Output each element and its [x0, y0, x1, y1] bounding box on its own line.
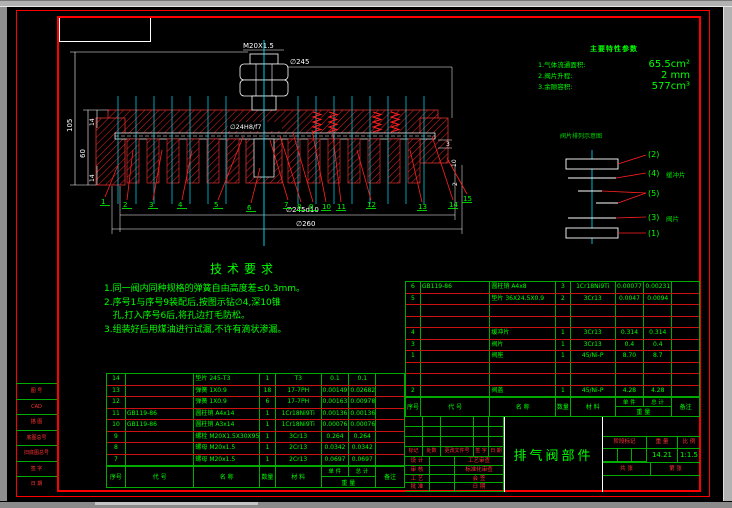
- title-block: 标记 处数 更改文件号 签 字 日 期 设 计工艺审查 审 核标准化审查 工 艺…: [405, 417, 700, 492]
- col-remark: 备注: [376, 466, 404, 487]
- margin-row: 底图总号: [16, 430, 57, 446]
- part-callout: 9: [309, 203, 313, 211]
- col-qty: 数量: [556, 397, 571, 416]
- bom-row: [406, 363, 699, 375]
- dim-bore: ∅24H8/f7: [230, 123, 262, 131]
- col-remark: 备注: [672, 397, 699, 416]
- col-total: 总 计: [349, 466, 375, 476]
- col-code: 代 号: [126, 466, 195, 487]
- margin-row: 图 号: [16, 383, 57, 399]
- plate-callout-note: 阀片: [666, 214, 679, 223]
- bom-row: 6GB119-86圆柱销 A4x831Cr18Ni9Ti0.000770.002…: [406, 282, 699, 294]
- part-callout: 2: [123, 201, 127, 209]
- sign-header-sign: 签 字: [474, 447, 489, 457]
- col-mat: 材 料: [276, 466, 322, 487]
- bom-row: [406, 317, 699, 329]
- bom-row: [406, 374, 699, 386]
- bom-row: 3阀片13Cr130.40.4: [406, 340, 699, 352]
- part-callout: 1: [101, 198, 105, 206]
- binding-margin-table: 图 号CAD描 图底图总号旧底图总号签 字日 期: [16, 383, 57, 492]
- sign-header-mark: 标记: [405, 447, 423, 457]
- sign-header-doc: 更改文件号: [441, 447, 474, 457]
- parameters-block: 主要特性参数 1.气体流通面积:65.5cm²2.阀片升程:2 mm3.余隙容积…: [538, 44, 690, 92]
- col-weight: 重 量: [616, 407, 672, 416]
- part-callout: 6: [247, 204, 252, 212]
- dim-thread: M20X1.5: [243, 42, 274, 50]
- bom-right-header: 序号 代 号 名 称 数量 材 料 单 件 总 计 重 量 备注: [405, 396, 700, 417]
- bom-row: 11GB119-86圆柱销 A4x1411Cr18Ni9Ti0.001360.0…: [107, 409, 404, 421]
- dim-gap: 2: [452, 182, 459, 186]
- valve-flange-left: [96, 118, 125, 185]
- valve-assembly-view: M20X1.5 ∅24H8/f7 ∅245 105 60 14 14 ∅2: [40, 36, 480, 252]
- part-callout: 11: [337, 203, 346, 211]
- window-top-bar: [0, 0, 732, 7]
- col-weight: 重 量: [322, 477, 376, 487]
- bom-row: 14垫片 245-T31T30.10.1: [107, 374, 404, 386]
- scale-label: 比 例: [678, 437, 700, 449]
- part-callout: 14: [449, 201, 458, 209]
- bom-table-right: 6GB119-86圆柱销 A4x831Cr18Ni9Ti0.000770.002…: [405, 281, 700, 398]
- col-name: 名 称: [490, 397, 556, 416]
- margin-row: 日 期: [16, 476, 57, 492]
- weight-value: 14.21: [647, 449, 678, 463]
- window-left-edge: [0, 7, 7, 501]
- bom-row: 1阀座145/Ni-P8.708.7: [406, 351, 699, 363]
- bom-row: 10GB119-86圆柱销 A3x1411Cr18Ni9Ti0.000760.0…: [107, 420, 404, 432]
- tech-requirement-line: 1.同一阀内同种规格的弹簧自由高度差≤0.3mm。: [104, 283, 384, 297]
- plate-1: [566, 228, 618, 238]
- bom-row: 13弹簧 1X0.91817-7PH0.001490.02682: [107, 386, 404, 398]
- signature-block: 标记 处数 更改文件号 签 字 日 期 设 计工艺审查 审 核标准化审查 工 艺…: [405, 417, 504, 492]
- part-callout: 13: [418, 203, 427, 211]
- dim-bolt-circle: ∅245d10: [286, 206, 319, 214]
- parameters-title: 主要特性参数: [538, 44, 690, 54]
- col-total: 总 计: [644, 397, 671, 406]
- bom-table-left: 14垫片 245-T31T30.10.113弹簧 1X0.91817-7PH0.…: [106, 373, 405, 467]
- tech-requirements-block: 技术要求 1.同一阀内同种规格的弹簧自由高度差≤0.3mm。2.序号1与序号9装…: [104, 260, 384, 337]
- dim-port: 10: [451, 159, 458, 167]
- plate-diagram-title: 阀片排列示意图: [560, 131, 602, 140]
- bom-row: 12弹簧 1X0.9617-7PH0.001630.00978: [107, 397, 404, 409]
- bom-row: 5垫片 36X24.5X0.923Cr130.00470.0094: [406, 294, 699, 306]
- plate-callout: (1): [648, 229, 659, 238]
- part-callout: 8: [297, 203, 301, 211]
- plate-callout-note: 缓冲片: [666, 170, 686, 179]
- plate-callout: (3): [648, 213, 659, 222]
- dim-lip-top: 14: [89, 118, 96, 126]
- parameter-item: 1.气体流通面积:65.5cm²: [538, 59, 690, 70]
- margin-row: 描 图: [16, 414, 57, 430]
- col-seq: 序号: [107, 466, 126, 487]
- dim-mid-height: 60: [79, 149, 87, 158]
- part-callout: 10: [322, 203, 331, 211]
- bom-row: [406, 305, 699, 317]
- col-code: 代 号: [421, 397, 491, 416]
- margin-row: CAD: [16, 399, 57, 415]
- tech-requirement-line: 孔,打入序号6后,将孔边打毛防松。: [104, 310, 384, 324]
- plate-callout: (2): [648, 150, 659, 159]
- dim-outer-dia: ∅245: [290, 58, 309, 66]
- parameter-item: 2.阀片升程:2 mm: [538, 70, 690, 81]
- plate-callout: (5): [648, 189, 659, 198]
- bom-row: 4缓冲片13Cr130.3140.314: [406, 328, 699, 340]
- bom-row: 8螺母 M20x1.512Cr130.03420.0342: [107, 443, 404, 455]
- stage-label: 阶段标记: [603, 437, 647, 449]
- bom-row: 9螺栓 M20X1.5X30X95-3H13Cr130.2640.264: [107, 432, 404, 444]
- sheet-number: 第 张: [651, 463, 700, 476]
- part-callout: 7: [284, 201, 288, 209]
- part-callout: 12: [367, 201, 376, 209]
- part-callout: 5: [214, 201, 218, 209]
- part-callout: 4: [178, 201, 183, 209]
- part-callout: 15: [463, 195, 472, 203]
- plate-callout: (4): [648, 169, 659, 178]
- bom-left-header: 序号 代 号 名 称 数量 材 料 单 件 总 计 重 量 备注: [106, 465, 405, 488]
- col-mat: 材 料: [571, 397, 616, 416]
- col-unit: 单 件: [322, 466, 349, 476]
- cad-window: 图 号CAD描 图底图总号旧底图总号签 字日 期 M20X1.5 ∅24H8: [0, 0, 732, 508]
- scale-value: 1:1.5: [678, 449, 700, 463]
- margin-row: 旧底图总号: [16, 445, 57, 461]
- title-info-table: 阶段标记 重 量 比 例 14.21 1:1.5 共 张 第 张: [603, 417, 700, 492]
- sheet-total: 共 张: [603, 463, 651, 476]
- col-unit: 单 件: [616, 397, 644, 406]
- margin-row: 签 字: [16, 461, 57, 477]
- dim-lip-bottom: 14: [89, 174, 96, 182]
- plate-2: [566, 159, 618, 169]
- window-right-edge: [723, 7, 732, 501]
- dim-flange-dia: ∅260: [296, 220, 315, 228]
- drawing-title: 排气阀部件: [504, 417, 603, 492]
- col-name: 名 称: [194, 466, 260, 487]
- sign-header-count: 处数: [423, 447, 441, 457]
- tech-requirement-line: 3.组装好后用煤油进行试漏,不许有滴状渗漏。: [104, 324, 384, 338]
- col-seq: 序号: [406, 397, 421, 416]
- dim-total-height: 105: [66, 119, 74, 132]
- sign-header-date: 日 期: [489, 447, 504, 457]
- weight-label: 重 量: [647, 437, 678, 449]
- col-qty: 数量: [260, 466, 276, 487]
- dim-step: 3: [446, 141, 450, 148]
- plate-stack-diagram: (2)(4)缓冲片(5)(3)阀片(1): [555, 128, 705, 250]
- tech-requirement-line: 2.序号1与序号9装配后,按图示钻∅4,深10锥: [104, 297, 384, 311]
- part-callout: 3: [149, 201, 153, 209]
- horizontal-scrollbar[interactable]: [95, 502, 258, 505]
- tech-requirements-title: 技术要求: [104, 260, 384, 277]
- parameter-item: 3.余隙容积:577cm³: [538, 81, 690, 92]
